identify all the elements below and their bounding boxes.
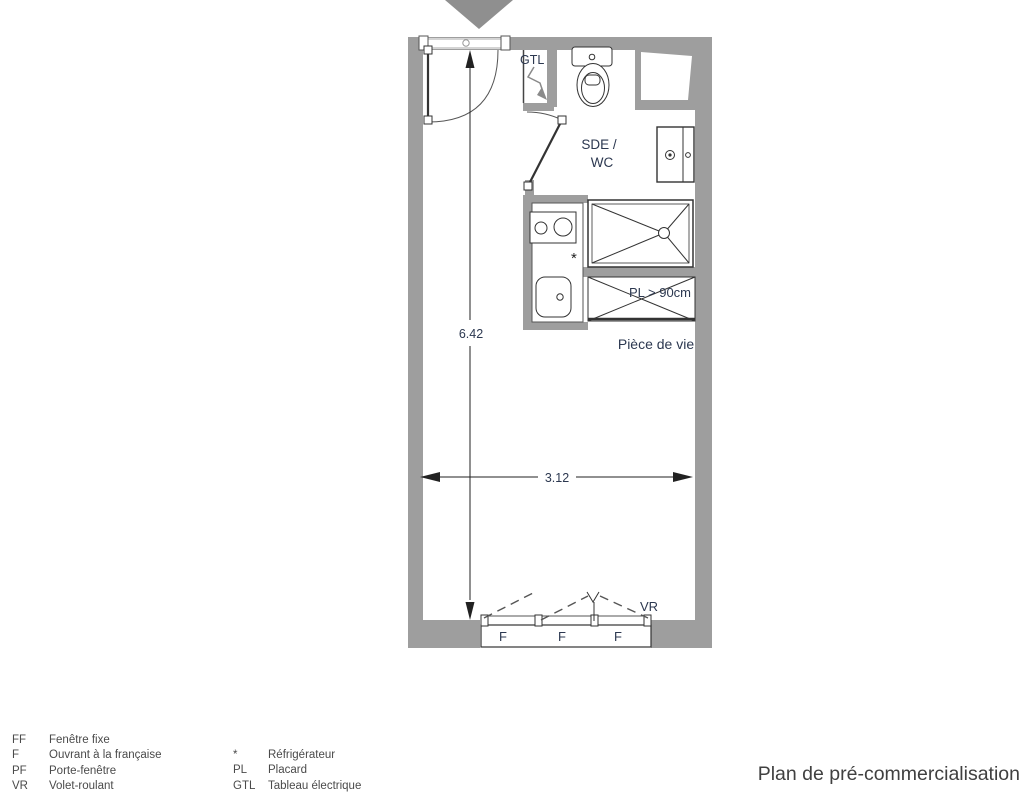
legend-abbr: VR	[12, 779, 49, 794]
legend-label: Volet-roulant	[49, 779, 114, 794]
legend-label: Réfrigérateur	[268, 748, 335, 763]
cooktop-fixture	[530, 212, 576, 243]
legend-item-fridge: * Réfrigérateur	[233, 748, 361, 763]
room-label-sde-line2: WC	[591, 155, 614, 170]
legend-item-vr: VR Volet-roulant	[12, 779, 162, 794]
legend-item-pl: PL Placard	[233, 763, 361, 778]
room-label-sde-line1: SDE /	[581, 137, 617, 152]
legend-abbr: F	[12, 748, 49, 763]
legend-abbr: *	[233, 748, 268, 763]
legend-item-f: F Ouvrant à la française	[12, 748, 162, 763]
legend-label: Porte-fenêtre	[49, 764, 116, 779]
window-f-label-3: F	[614, 629, 622, 644]
wall-shaft-opening	[641, 52, 692, 100]
legend-label: Placard	[268, 763, 307, 778]
dim-width-value: 3.12	[545, 471, 569, 485]
kitchenette: *	[530, 203, 583, 322]
legend-item-pf: PF Porte-fenêtre	[12, 764, 162, 779]
legend-label: Fenêtre fixe	[49, 733, 110, 748]
gtl-label: GTL	[520, 53, 544, 67]
legend-abbr: PF	[12, 764, 49, 779]
fridge-marker: *	[571, 250, 577, 267]
shower-drain-icon	[659, 228, 670, 239]
window-f-label-1: F	[499, 629, 507, 644]
shower-tray	[588, 200, 693, 267]
page: *	[0, 0, 1032, 800]
legend-label: Ouvrant à la française	[49, 748, 162, 763]
entrance-arrow-icon	[445, 0, 513, 29]
vanity-cabinet	[657, 127, 694, 182]
legend-abbr: FF	[12, 733, 49, 748]
window-f-label-2: F	[558, 629, 566, 644]
legend-left: FF Fenêtre fixe F Ouvrant à la française…	[12, 733, 162, 795]
legend-right: * Réfrigérateur PL Placard GTL Tableau é…	[233, 748, 361, 794]
living-room-label: Pièce de vie	[618, 336, 694, 352]
page-title: Plan de pré-commercialisation	[758, 763, 1020, 786]
dim-height-value: 6.42	[459, 327, 483, 341]
legend-abbr: PL	[233, 763, 268, 778]
vr-label: VR	[640, 599, 658, 614]
sink-fixture	[536, 277, 571, 317]
legend-item-gtl: GTL Tableau électrique	[233, 779, 361, 794]
floor-plan: *	[0, 0, 1032, 710]
toilet-fixture	[572, 47, 612, 107]
placard-label: PL > 90cm	[629, 285, 691, 300]
legend-abbr: GTL	[233, 779, 268, 794]
bathroom-door	[524, 112, 566, 190]
legend-item-ff: FF Fenêtre fixe	[12, 733, 162, 748]
legend-label: Tableau électrique	[268, 779, 361, 794]
